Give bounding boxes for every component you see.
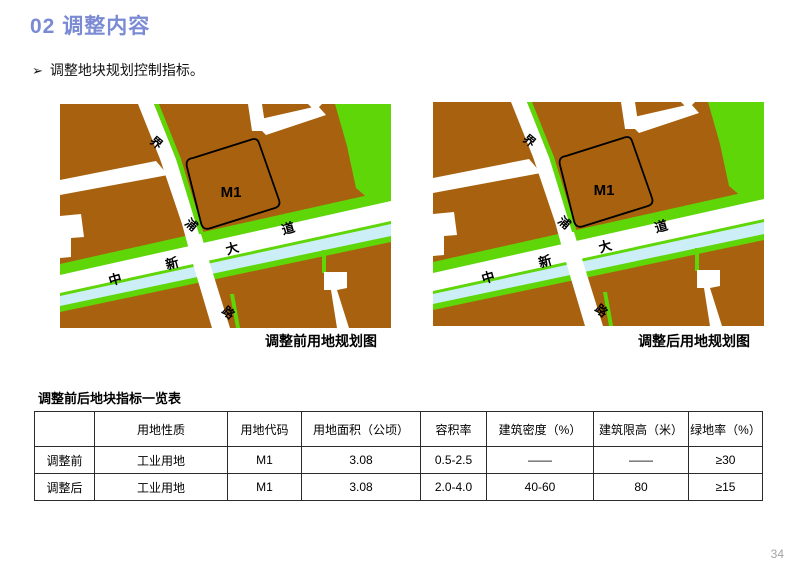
page-title: 02 调整内容 xyxy=(30,10,150,40)
table-row-before: 调整前 工业用地 M1 3.08 0.5-2.5 —— —— ≥30 xyxy=(35,447,763,474)
arrow-bullet-icon: ➢ xyxy=(32,64,43,77)
table-cell: 工业用地 xyxy=(95,474,228,501)
table-title: 调整前后地块指标一览表 xyxy=(38,388,181,407)
table-cell: —— xyxy=(487,447,594,474)
table-cell: ≥30 xyxy=(689,447,763,474)
table-header-cell: 用地面积（公顷） xyxy=(302,412,421,447)
table-header-cell: 绿地率（%） xyxy=(689,412,763,447)
row-label: 调整后 xyxy=(35,474,95,501)
bullet-line: ➢ 调整地块规划控制指标。 xyxy=(32,60,204,80)
table-header-cell: 用地性质 xyxy=(95,412,228,447)
map-before: M1 界 浦 路 中 新 大 道 xyxy=(60,104,391,328)
map-after: M1 界 浦 路 中 新 大 道 xyxy=(433,102,764,326)
table-cell: 工业用地 xyxy=(95,447,228,474)
table-cell: 0.5-2.5 xyxy=(421,447,487,474)
indicator-table: 用地性质 用地代码 用地面积（公顷） 容积率 建筑密度（%） 建筑限高（米） 绿… xyxy=(34,411,763,501)
table-cell: M1 xyxy=(228,447,302,474)
table-cell: 40-60 xyxy=(487,474,594,501)
table-header-cell: 容积率 xyxy=(421,412,487,447)
m1-parcel-label: M1 xyxy=(221,184,242,201)
table-cell: —— xyxy=(594,447,689,474)
table-row-after: 调整后 工业用地 M1 3.08 2.0-4.0 40-60 80 ≥15 xyxy=(35,474,763,501)
table-cell: 80 xyxy=(594,474,689,501)
landuse-map-svg: M1 界 浦 路 中 新 大 道 xyxy=(433,102,764,326)
caption-after: 调整后用地规划图 xyxy=(419,331,750,351)
row-label: 调整前 xyxy=(35,447,95,474)
caption-before: 调整前用地规划图 xyxy=(46,331,377,351)
table-header-cell: 用地代码 xyxy=(228,412,302,447)
green-connector xyxy=(322,250,326,273)
green-connector xyxy=(695,248,699,271)
bullet-text: 调整地块规划控制指标。 xyxy=(50,60,204,80)
m1-parcel-label: M1 xyxy=(594,182,615,199)
table-header-cell: 建筑密度（%） xyxy=(487,412,594,447)
table-cell: 2.0-4.0 xyxy=(421,474,487,501)
table-cell: M1 xyxy=(228,474,302,501)
table-header-cell: 建筑限高（米） xyxy=(594,412,689,447)
table-header-row: 用地性质 用地代码 用地面积（公顷） 容积率 建筑密度（%） 建筑限高（米） 绿… xyxy=(35,412,763,447)
landuse-map-svg: M1 界 浦 路 中 新 大 道 xyxy=(60,104,391,328)
page-number: 34 xyxy=(771,547,784,561)
table-header-cell xyxy=(35,412,95,447)
table-cell: 3.08 xyxy=(302,474,421,501)
table-cell: ≥15 xyxy=(689,474,763,501)
table-cell: 3.08 xyxy=(302,447,421,474)
